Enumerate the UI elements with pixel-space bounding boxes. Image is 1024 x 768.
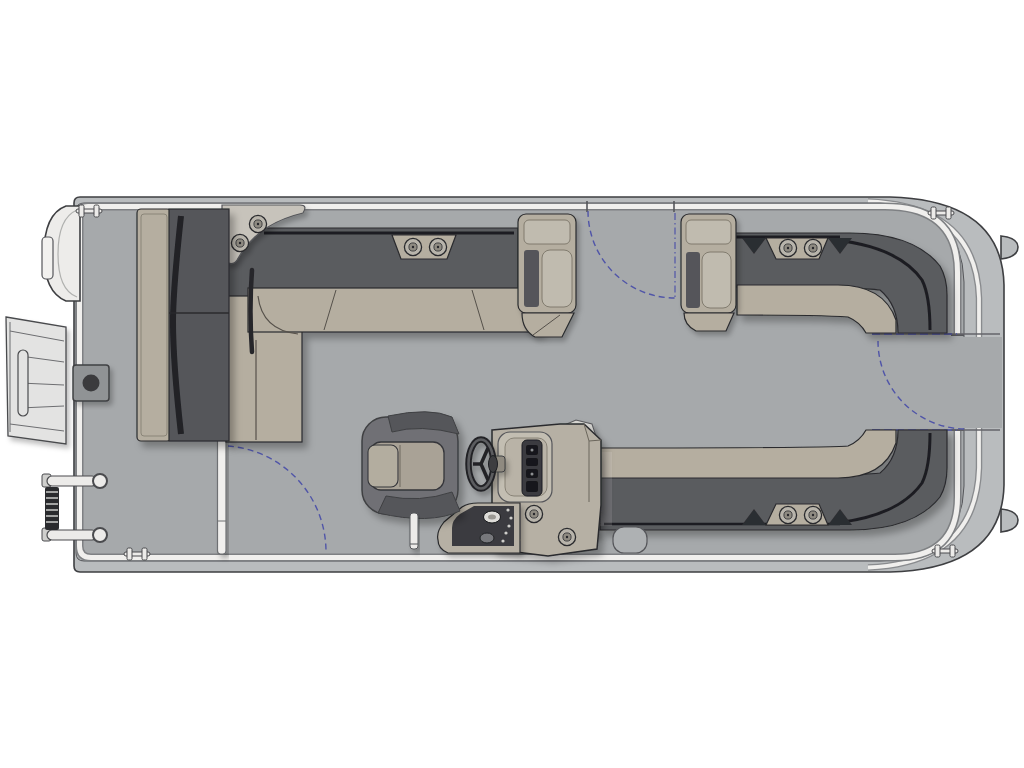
motor-mount-tab-bottom (1001, 509, 1018, 532)
stern-lounge-armrest (518, 214, 576, 337)
cup-holder (779, 239, 796, 256)
ladder-ring-bottom (93, 528, 107, 542)
stern-side-gate-open (218, 438, 227, 554)
pontoon-floorplan (0, 0, 1024, 768)
table-pedestal-base (73, 365, 109, 401)
bench-cooler-tab (613, 527, 647, 553)
steps-grab-handle (18, 350, 28, 416)
bow-walkway-floor (950, 337, 1002, 428)
ladder-folded-rungs (45, 487, 59, 530)
bow-lounge-top-armrest (681, 214, 736, 331)
stern-nav-light (42, 237, 53, 279)
ladder-rail-top (47, 476, 97, 486)
bench-end-highlight (600, 452, 612, 526)
gauge (526, 458, 538, 466)
stern-lounge-bend-shadow (251, 270, 253, 352)
stern-couch-backrest (137, 209, 171, 441)
ski-tow-post (410, 513, 418, 549)
cup-holder (404, 238, 421, 255)
cup-holder (804, 239, 821, 256)
motor-mount-tab-top (1001, 236, 1018, 259)
cup-holder (429, 238, 446, 255)
cup-holder (779, 506, 796, 523)
chair-headrest-pad (368, 445, 398, 487)
ladder-rail-bottom (47, 530, 97, 540)
cup-holder (804, 506, 821, 523)
cup-holder (249, 215, 266, 232)
stern-swim-steps (6, 317, 66, 444)
console-cup-holder (558, 528, 575, 545)
console-cup-holder (525, 505, 542, 522)
gauge (526, 481, 538, 492)
stern-couch (137, 209, 229, 441)
ladder-ring-top (93, 474, 107, 488)
stern-lounge-seat-horizontal (248, 288, 540, 332)
cup-holder (231, 234, 248, 251)
switch-knob (480, 533, 494, 543)
pontoon-floorplan-canvas (0, 0, 1024, 768)
captains-chair (362, 412, 460, 519)
